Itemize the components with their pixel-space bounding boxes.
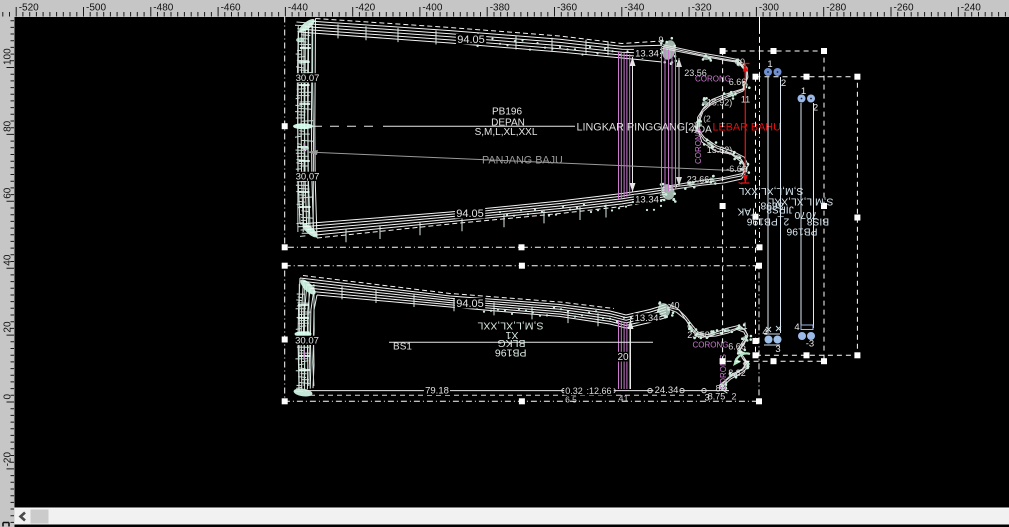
svg-text:60: 60 — [3, 187, 14, 199]
svg-text:2_PB196: 2_PB196 — [747, 215, 790, 226]
svg-text:S,M,L,XL,XXL: S,M,L,XL,XXL — [738, 185, 803, 196]
svg-text:1: 1 — [767, 59, 772, 70]
svg-text:TAK: TAK — [737, 206, 756, 217]
svg-text:13.34: 13.34 — [635, 195, 659, 206]
svg-text:8.75: 8.75 — [708, 392, 726, 402]
svg-text:1: 1 — [742, 321, 747, 331]
svg-text:4: 4 — [794, 322, 799, 333]
svg-text:LINGKAR PINGGANG[2]: LINGKAR PINGGANG[2] — [577, 122, 698, 134]
svg-text:CORONG: CORONG — [694, 128, 703, 164]
svg-text:-20: -20 — [3, 452, 14, 467]
svg-text:-260: -260 — [894, 3, 914, 14]
svg-text:PB196: PB196 — [495, 347, 527, 359]
svg-text:1: 1 — [801, 86, 806, 97]
svg-text:94.05: 94.05 — [456, 298, 484, 310]
svg-text:-380: -380 — [490, 3, 510, 14]
svg-text:CORONG: CORONG — [695, 75, 731, 84]
svg-text:94.05: 94.05 — [456, 208, 484, 220]
svg-text:S,M,L,XL,XXL: S,M,L,XL,XXL — [475, 127, 538, 138]
svg-text:80: 80 — [3, 120, 14, 132]
svg-text:20: 20 — [617, 352, 629, 363]
svg-text:-480: -480 — [153, 3, 173, 14]
svg-text:20: 20 — [3, 321, 14, 333]
svg-text:-240: -240 — [961, 3, 981, 14]
svg-text:41: 41 — [618, 394, 628, 404]
svg-text:6 5: 6 5 — [565, 395, 577, 405]
svg-text:13.34: 13.34 — [635, 49, 659, 60]
svg-text:-320: -320 — [692, 3, 712, 14]
svg-text:94.05: 94.05 — [457, 34, 485, 46]
svg-text:23.58: 23.58 — [687, 330, 710, 340]
svg-text:-400: -400 — [422, 3, 442, 14]
svg-text:40: 40 — [735, 57, 745, 67]
svg-text:15.92): 15.92) — [707, 98, 733, 108]
svg-text:BIS8: BIS8 — [807, 215, 830, 226]
svg-text:8.82: 8.82 — [728, 368, 746, 378]
svg-text:24.34: 24.34 — [655, 385, 679, 396]
svg-text:-520: -520 — [19, 3, 39, 14]
svg-text:6.66: 6.66 — [728, 342, 746, 352]
svg-text:40: 40 — [669, 301, 679, 311]
svg-text:-340: -340 — [624, 3, 644, 14]
svg-text:2: 2 — [731, 392, 736, 402]
svg-text:40: 40 — [3, 254, 14, 266]
svg-text:3: 3 — [775, 344, 780, 355]
svg-text:100: 100 — [3, 48, 14, 65]
svg-text:11: 11 — [741, 95, 750, 105]
svg-text:-500: -500 — [86, 3, 106, 14]
svg-text:6.66: 6.66 — [729, 77, 747, 87]
svg-text::12.66: :12.66 — [586, 386, 611, 396]
svg-text:-3: -3 — [806, 339, 814, 350]
svg-text:-420: -420 — [355, 3, 375, 14]
svg-text:2: 2 — [813, 103, 818, 114]
svg-text:-280: -280 — [826, 3, 846, 14]
svg-text:13.34: 13.34 — [635, 313, 659, 324]
svg-text:2: 2 — [781, 78, 786, 89]
svg-text:79.18: 79.18 — [425, 386, 449, 397]
svg-text:-460: -460 — [221, 3, 241, 14]
svg-text:PANJANG BAJU: PANJANG BAJU — [482, 155, 563, 167]
svg-text:30.07: 30.07 — [295, 336, 319, 347]
svg-text:PB196: PB196 — [492, 107, 522, 118]
svg-text:30,07: 30,07 — [296, 172, 320, 183]
svg-text:30.07: 30.07 — [296, 73, 320, 84]
svg-text:4: 4 — [762, 327, 767, 338]
svg-text:-6.66: -6.66 — [726, 164, 747, 174]
svg-text:-300: -300 — [759, 3, 779, 14]
svg-text:23.66: 23.66 — [687, 175, 710, 185]
svg-text:(2: (2 — [703, 114, 711, 124]
svg-text:JIPS8: JIPS8 — [766, 204, 794, 215]
svg-text:-440: -440 — [288, 3, 308, 14]
svg-text:0: 0 — [3, 394, 14, 400]
svg-text:-360: -360 — [557, 3, 577, 14]
svg-text:PB196: PB196 — [786, 226, 817, 237]
svg-text:BS1: BS1 — [393, 342, 412, 353]
svg-text:15.82): 15.82) — [707, 145, 733, 155]
